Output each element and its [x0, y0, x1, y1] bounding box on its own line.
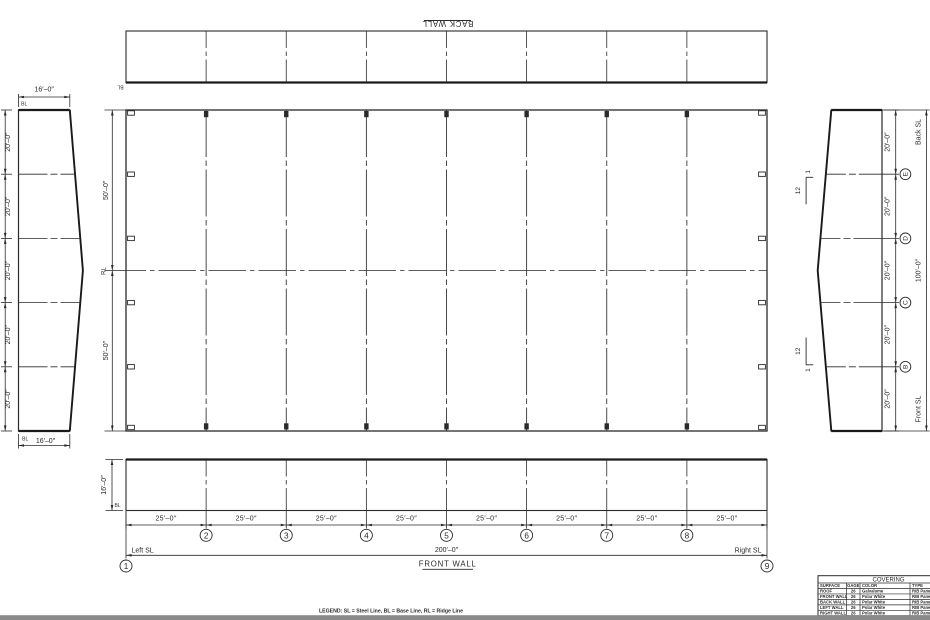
svg-text:1: 1 [805, 368, 812, 372]
svg-text:12: 12 [795, 347, 802, 355]
svg-text:RIB Panel: RIB Panel [912, 610, 930, 615]
svg-text:BL: BL [21, 101, 27, 107]
svg-text:50′–0″: 50′–0″ [103, 180, 110, 200]
svg-text:FRONT WALL: FRONT WALL [419, 560, 477, 569]
svg-text:9: 9 [765, 562, 770, 571]
svg-text:26: 26 [851, 600, 856, 605]
svg-text:Left SL: Left SL [132, 547, 154, 554]
svg-text:RL: RL [102, 267, 108, 275]
svg-text:20′–0″: 20′–0″ [884, 389, 891, 409]
svg-text:C: C [903, 300, 910, 305]
svg-text:4: 4 [364, 531, 369, 540]
svg-text:16′–0″: 16′–0″ [101, 475, 108, 495]
svg-text:25′–0″: 25′–0″ [716, 516, 737, 523]
svg-text:20′–0″: 20′–0″ [884, 196, 891, 216]
svg-text:20′–0″: 20′–0″ [5, 389, 12, 409]
svg-text:1: 1 [805, 170, 812, 174]
svg-text:20′–0″: 20′–0″ [884, 325, 891, 345]
svg-text:COLOR: COLOR [862, 583, 877, 588]
svg-text:26: 26 [851, 610, 856, 615]
svg-text:20′–0″: 20′–0″ [5, 196, 12, 216]
svg-text:20′–0″: 20′–0″ [5, 325, 12, 345]
svg-text:2: 2 [204, 531, 209, 540]
svg-text:20′–0″: 20′–0″ [5, 132, 12, 152]
svg-text:RIB Panel: RIB Panel [912, 605, 930, 610]
svg-text:Galvalume: Galvalume [862, 589, 884, 594]
svg-text:200′–0″: 200′–0″ [435, 547, 459, 554]
svg-text:100′–0″: 100′–0″ [915, 258, 922, 282]
svg-text:TYPE: TYPE [912, 583, 923, 588]
svg-text:3: 3 [284, 531, 289, 540]
svg-text:20′–0″: 20′–0″ [5, 260, 12, 280]
svg-text:26: 26 [851, 589, 856, 594]
svg-text:ROOF: ROOF [820, 589, 833, 594]
svg-text:Polar White: Polar White [862, 594, 886, 599]
svg-text:8: 8 [685, 531, 690, 540]
svg-text:26: 26 [851, 605, 856, 610]
svg-text:LEGEND: SL = Steel Line,: LEGEND: SL = Steel Line, BL = Base Line,… [319, 608, 463, 614]
svg-text:GAGE: GAGE [847, 583, 860, 588]
svg-text:RIB Panel: RIB Panel [912, 600, 930, 605]
svg-text:6: 6 [524, 531, 529, 540]
svg-text:RIB Panel: RIB Panel [912, 589, 930, 594]
svg-text:Right SL: Right SL [735, 547, 762, 554]
svg-text:COVERING: COVERING [872, 578, 904, 584]
svg-text:25′–0″: 25′–0″ [556, 516, 577, 523]
svg-text:25′–0″: 25′–0″ [236, 516, 257, 523]
svg-text:25′–0″: 25′–0″ [476, 516, 497, 523]
svg-text:RIGHT WALL: RIGHT WALL [820, 610, 846, 615]
svg-text:Polar White: Polar White [862, 605, 886, 610]
svg-text:25′–0″: 25′–0″ [636, 516, 657, 523]
svg-text:BL: BL [22, 437, 28, 443]
svg-text:16′–0″: 16′–0″ [36, 438, 56, 445]
svg-text:1: 1 [124, 562, 129, 571]
svg-text:26: 26 [851, 594, 856, 599]
svg-text:50′–0″: 50′–0″ [103, 340, 110, 360]
svg-text:20′–0″: 20′–0″ [884, 260, 891, 280]
svg-text:B: B [903, 365, 910, 369]
svg-text:5: 5 [444, 531, 449, 540]
svg-text:25′–0″: 25′–0″ [396, 516, 417, 523]
svg-text:BACK WALL: BACK WALL [820, 600, 846, 605]
svg-text:25′–0″: 25′–0″ [316, 516, 337, 523]
svg-text:BL: BL [117, 84, 123, 90]
svg-text:E: E [903, 171, 910, 176]
svg-text:Front SL: Front SL [915, 395, 922, 422]
svg-text:FRONT WALL: FRONT WALL [820, 594, 848, 599]
svg-text:LEFT WALL: LEFT WALL [820, 605, 844, 610]
svg-text:12: 12 [795, 187, 802, 195]
svg-text:SURFACE: SURFACE [820, 583, 840, 588]
svg-text:BL: BL [114, 503, 120, 509]
svg-text:RIB Panel: RIB Panel [912, 594, 930, 599]
svg-text:Polar White: Polar White [862, 610, 886, 615]
svg-text:25′–0″: 25′–0″ [155, 516, 176, 523]
svg-text:7: 7 [604, 531, 609, 540]
svg-text:16′–0″: 16′–0″ [35, 87, 55, 94]
svg-text:Back SL: Back SL [915, 119, 922, 145]
svg-text:20′–0″: 20′–0″ [884, 132, 891, 152]
svg-text:Polar White: Polar White [862, 600, 886, 605]
svg-text:D: D [903, 236, 910, 241]
